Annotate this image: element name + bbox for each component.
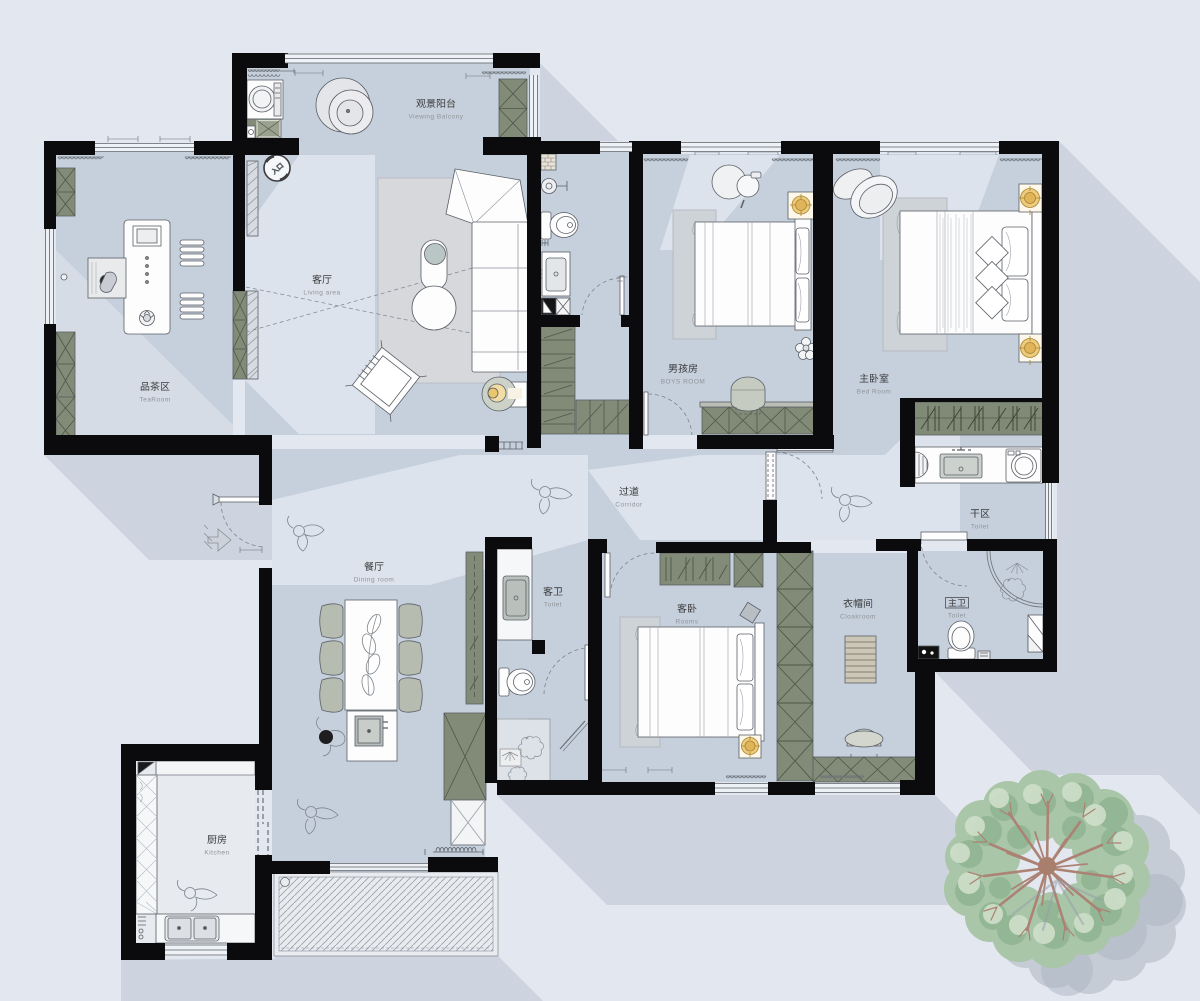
svg-text:Living area: Living area [303,290,340,297]
svg-text:Rooms: Rooms [675,619,698,626]
svg-text:Dining room: Dining room [354,577,395,584]
svg-text:Toilet: Toilet [544,602,562,609]
svg-text:TeaRoom: TeaRoom [139,397,170,404]
svg-text:Toilet: Toilet [948,613,966,620]
svg-text:Kitchen: Kitchen [204,850,229,857]
svg-text:Corridor: Corridor [615,502,643,509]
svg-text:Cloakroom: Cloakroom [840,614,876,621]
svg-text:Bed Room: Bed Room [857,389,892,396]
svg-text:Viewing Balcony: Viewing Balcony [408,114,463,121]
svg-text:Toilet: Toilet [971,524,989,531]
svg-text:BOYS ROOM: BOYS ROOM [661,379,706,386]
